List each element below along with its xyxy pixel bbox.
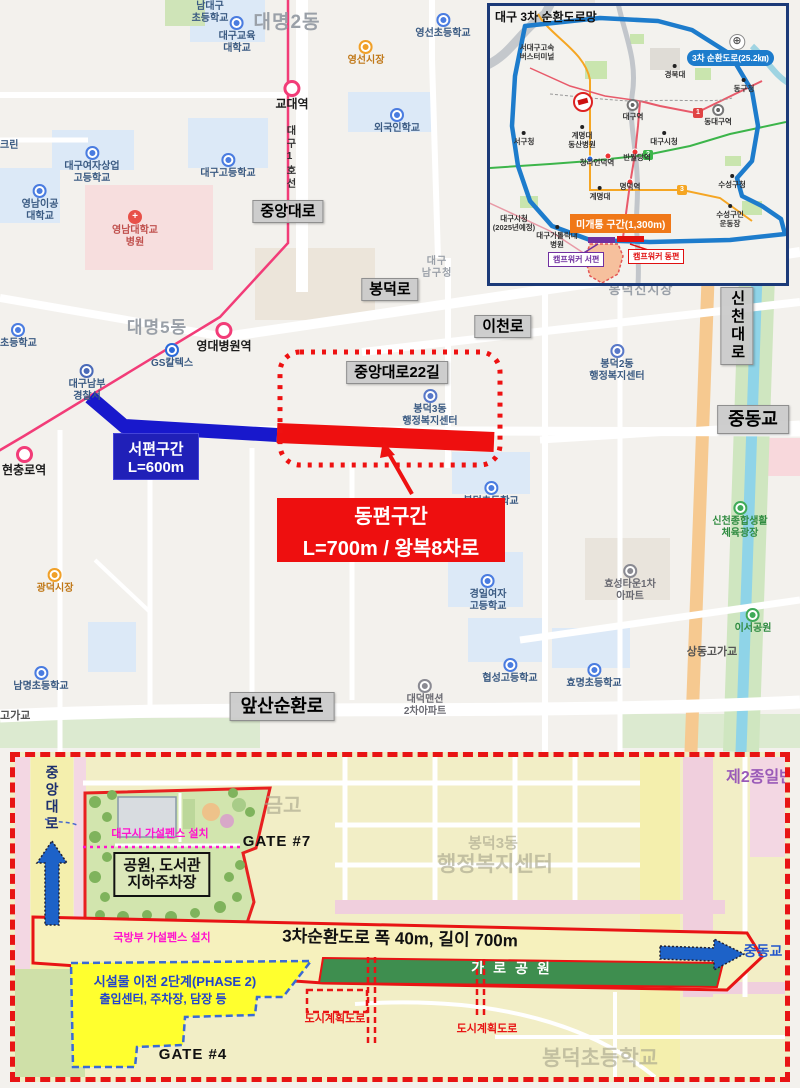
inset-title: 대구 3차 순환도로망 <box>495 8 597 25</box>
poi-clipped-left-1-text: 크린 <box>0 140 18 152</box>
inset-myeongdeok-station-text: 명덕역 <box>620 182 641 191</box>
inset-seodaegu-terminal: 서대구고속버스터미널 <box>520 43 555 61</box>
road-label-apsan-sunhwan-ro-text: 앞산순환로 <box>241 696 324 717</box>
school-icon <box>587 663 601 677</box>
poi-hyeopseong-high: 협성고등학교 <box>482 658 537 685</box>
inset-donggu-office: 동구청 <box>734 78 755 93</box>
poi-gs-caltex-text: GS칼텍스 <box>151 358 193 370</box>
west-section-length: L=600m <box>114 459 198 476</box>
dotb-icon <box>662 131 666 135</box>
line1-badge: 1 <box>693 108 703 118</box>
poi-yeongseon-market-text: 영선시장 <box>348 55 385 67</box>
poi-hyomyeong-elementary-text: 효명초등학교 <box>566 678 621 690</box>
poi-yeongseon-elementary-text: 영선초등학교 <box>415 28 470 40</box>
poi-yeongseon-market: 영선시장 <box>348 40 385 67</box>
sta2-icon <box>712 104 724 116</box>
school-icon <box>221 153 235 167</box>
east-section-length: L=700m / 왕복8차로 <box>277 532 505 561</box>
west-section-road <box>90 397 277 435</box>
line3-badge: 3 <box>677 185 687 195</box>
poi-kyungil-girls-high-text: 경일여자고등학교 <box>470 589 507 612</box>
poi-sincheon-sports-plaza-text: 신천종합생활체육광장 <box>712 516 767 539</box>
poi-daegu-nambu-police-text: 대구남부경찰서 <box>69 379 106 402</box>
poi-nammyeong-elementary-text: 남명초등학교 <box>13 681 68 693</box>
linear-park-label: 가로공원 <box>471 960 559 977</box>
road-label-icheon-ro-text: 이천로 <box>482 318 523 335</box>
station-gyodae-text: 교대역 <box>275 98 308 112</box>
west-section-name: 서편구간 <box>114 438 198 459</box>
dotb-icon <box>580 125 584 129</box>
road-label-jungang-daero-22gil-text: 중앙대로22길 <box>354 364 440 381</box>
jungang-daero-vertical-label: 중앙대로 <box>44 765 60 833</box>
bridge-label-clipped: 고가교 <box>0 710 30 723</box>
inset-cityhall-2025-text: 대구시청(2025년예정) <box>493 214 535 232</box>
poi-daegu-girls-commercial-high: 대구여자상업고등학교 <box>64 146 119 184</box>
poi-hyeopseong-high-text: 협성고등학교 <box>482 673 537 685</box>
gate-4-label-text: GATE #4 <box>159 1046 227 1063</box>
unopened-section-label: 미개통 구간(1,300m) <box>570 214 671 233</box>
urban-planning-road-label-2-text: 도시계획도로 <box>457 1023 518 1036</box>
park-icon <box>733 501 747 515</box>
poi-gs-caltex: GS칼텍스 <box>151 343 193 370</box>
station-hyeonchungno-text: 현충로역 <box>2 464 46 478</box>
area-label-daemyeong-2dong: 대명2동 <box>253 12 320 34</box>
inset-seogu-office-text: 서구청 <box>514 137 535 146</box>
poi-clipped-elementary-text: 초등학교 <box>0 338 37 350</box>
faded-bongdeok3-text: 봉덕3동 <box>468 835 518 852</box>
poi-yeongseon-elementary: 영선초등학교 <box>415 13 470 40</box>
poi-yeungnam-univ-hospital: +영남대학교병원 <box>112 210 158 248</box>
station-yeungdae-hospital: 영대병원역 <box>196 322 251 354</box>
east-section-callout: 동편구간 L=700m / 왕복8차로 <box>277 498 505 562</box>
linear-park-label-text: 가로공원 <box>471 960 559 977</box>
subway-line1-label: 대구1호선 <box>283 125 295 191</box>
poi-bongdeok2-center-text: 봉덕2동행정복지센터 <box>589 359 644 382</box>
road-label-apsan-sunhwan-ro: 앞산순환로 <box>230 692 335 721</box>
poi-daedeok-mansion-apt: 대덕맨션2차아파트 <box>404 679 446 717</box>
bridge-label-sangdong-text: 상동고가교 <box>687 646 738 659</box>
site-plan-canvas <box>15 757 785 1077</box>
inset-banwoldang-station-text: 반월당역 <box>623 153 651 162</box>
school-icon <box>33 184 47 198</box>
defense-ministry-fence-label-text: 국방부 가설펜스 설치 <box>113 932 210 945</box>
area-label-daemyeong-5dong: 대명5동 <box>127 318 187 338</box>
poi-kyungil-girls-high: 경일여자고등학교 <box>470 574 507 612</box>
market-icon <box>48 568 62 582</box>
road-label-jungang-daero-text: 중앙대로 <box>260 203 315 220</box>
ring-road-badge: 3차 순환도로(25.2㎞) <box>687 50 774 66</box>
faded-map-text-1-text: 금고 <box>265 795 302 818</box>
air-icon: ⊕ <box>729 34 745 50</box>
road-label-icheon-ro: 이천로 <box>474 315 531 338</box>
inset-banwoldang-station: 반월당역 <box>623 153 651 162</box>
inset-suseonggu-office-text: 수성구청 <box>718 180 746 189</box>
faded-bongdeok3: 봉덕3동 <box>468 835 518 852</box>
faded-community-center: 행정복지센터 <box>437 853 553 877</box>
road-label-bongdeok-ro: 봉덕로 <box>361 278 418 301</box>
inset-cheongna-station-text: 청라언덕역 <box>580 158 615 167</box>
east-section-name: 동편구간 <box>277 500 505 529</box>
bridge-label-sangdong: 상동고가교 <box>687 646 738 659</box>
poi-daegu-high: 대구고등학교 <box>200 153 255 180</box>
daegu-city-fence-label: 대구시 가설펜스 설치 <box>111 828 208 841</box>
park-icon <box>746 608 760 622</box>
station-gyodae: 교대역 <box>275 80 308 112</box>
camp-walker-east-label: 캠프워커 동편 <box>628 249 684 264</box>
poi-yeungnam-univ-hospital-text: 영남대학교병원 <box>112 225 158 248</box>
poi-clipped-elementary: 초등학교 <box>0 323 37 350</box>
poi-bongdeok3-center-text: 봉덕3동행정복지센터 <box>402 404 457 427</box>
poi-yeungnam-univ-tech: 영남이공대학교 <box>22 184 59 222</box>
jungang-daero-vertical-label-text: 중앙대로 <box>44 765 60 833</box>
inset-seodaegu-terminal-text: 서대구고속버스터미널 <box>520 43 555 61</box>
camp-walker-west-label: 캠프워커 서편 <box>548 252 604 267</box>
inset-daegu-station: 대구역 <box>623 99 644 121</box>
poi-iseo-park-text: 이서공원 <box>735 623 772 635</box>
inset-suseong-stadium: 수성구민운동장 <box>716 204 744 228</box>
daegu-city-fence-label-text: 대구시 가설펜스 설치 <box>111 828 208 841</box>
defense-ministry-fence-label: 국방부 가설펜스 설치 <box>113 932 210 945</box>
faded-map-text-1: 금고 <box>265 795 302 818</box>
school-icon <box>484 481 498 495</box>
inset-daegu-cityhall-text: 대구시청 <box>650 137 678 146</box>
school-icon <box>481 574 495 588</box>
dotb-icon <box>555 225 559 229</box>
poi-nammyeong-elementary: 남명초등학교 <box>13 666 68 693</box>
bridge-label-clipped-text: 고가교 <box>0 710 30 723</box>
station-yeungdae-hospital-text: 영대병원역 <box>196 340 251 354</box>
road-label-jungdong-bridge: 중동교 <box>717 405 789 434</box>
inset-suseonggu-office: 수성구청 <box>718 174 746 189</box>
poi-gwangdeok-market-text: 광덕시장 <box>37 583 74 595</box>
figure-root: 중앙대로봉덕로이천로중앙대로22길신천대로중동교앞산순환로대명2동대명5동봉덕신… <box>0 0 800 1088</box>
area-label-namgu-office-text: 대구남구청 <box>422 256 453 279</box>
inset-dongsan-hospital: 계명대동산병원 <box>568 125 596 149</box>
jungdong-bridge-label: 중동교 <box>744 943 783 959</box>
dotb-icon <box>673 64 677 68</box>
phase2-title-text: 시설물 이전 2단계(PHASE 2) <box>94 975 256 990</box>
inset-dongdaegu-station: 동대구역 <box>704 104 732 126</box>
dotb-icon <box>522 131 526 135</box>
faded-bongdeok-elementary: 봉덕초등학교 <box>542 1047 658 1071</box>
site-plan-diagram: 금고봉덕3동행정복지센터봉덕초등학교제2종일반GATE #7GATE #4대구시… <box>10 752 790 1082</box>
poi-bongdeok3-center: 봉덕3동행정복지센터 <box>402 389 457 427</box>
poi-sincheon-sports-plaza: 신천종합생활체육광장 <box>712 501 767 539</box>
sta2-icon <box>627 99 639 111</box>
gate-4-label: GATE #4 <box>159 1046 227 1063</box>
area-label-daemyeong-5dong-text: 대명5동 <box>127 318 187 338</box>
poi-iseo-park: 이서공원 <box>735 608 772 635</box>
police-icon <box>80 364 94 378</box>
poi-yeungnam-univ-tech-text: 영남이공대학교 <box>22 199 59 222</box>
area-label-namgu-office: 대구남구청 <box>422 256 453 279</box>
station-icon <box>215 322 232 339</box>
zoning-label: 제2종일반 <box>726 769 790 787</box>
inset-keimyung-univ: 계명대 <box>590 186 611 201</box>
road-label-jungdong-bridge-text: 중동교 <box>728 409 778 430</box>
inset-suseong-stadium-text: 수성구민운동장 <box>716 210 744 228</box>
inset-myeongdeok-station: 명덕역 <box>620 182 641 191</box>
poi-hyosung-town-apt: 효성타운1차아파트 <box>604 564 656 602</box>
urban-planning-road-label-2: 도시계획도로 <box>457 1023 518 1036</box>
market-icon <box>359 40 373 54</box>
poi-daegu-natl-univ-education: 대구교육대학교 <box>219 16 256 54</box>
urban-planning-road-label-1: 도시계획도로 <box>305 1013 366 1026</box>
faded-community-center-text: 행정복지센터 <box>437 853 553 877</box>
phase2-title: 시설물 이전 2단계(PHASE 2) <box>94 975 256 990</box>
poi-clipped-left-1: 크린 <box>0 140 18 152</box>
phase2-subtitle-text: 출입센터, 주차장, 담장 등 <box>99 993 226 1007</box>
dotb-icon <box>742 78 746 82</box>
inset-dongsan-hospital-text: 계명대동산병원 <box>568 131 596 149</box>
zoning-label-text: 제2종일반 <box>726 769 790 787</box>
poi-foreign-school-text: 외국인학교 <box>374 123 420 135</box>
inset-ring-road-map: 대구 3차 순환도로망 3차 순환도로(25.2㎞) 미개통 구간(1,300m… <box>487 3 789 286</box>
inset-daegu-cityhall: 대구시청 <box>650 131 678 146</box>
poi-gwangdeok-market: 광덕시장 <box>37 568 74 595</box>
station-icon <box>16 446 33 463</box>
apt-icon <box>418 679 432 693</box>
road-label-jungang-daero: 중앙대로 <box>252 200 323 223</box>
dotb-icon <box>728 204 732 208</box>
gate-7-label-text: GATE #7 <box>243 833 311 850</box>
center-marker <box>574 93 592 111</box>
park-library-parking-box: 공원, 도서관지하주차장 <box>113 852 210 897</box>
school-icon <box>436 13 450 27</box>
gate-7-label: GATE #7 <box>243 833 311 850</box>
road-label-sincheon-daero: 신천대로 <box>720 287 753 365</box>
poi-bongdeok2-center: 봉덕2동행정복지센터 <box>589 344 644 382</box>
poi-daegu-high-text: 대구고등학교 <box>200 168 255 180</box>
faded-bongdeok-elementary-text: 봉덕초등학교 <box>542 1047 658 1071</box>
inset-cheongna-station: 청라언덕역 <box>580 158 615 167</box>
poi-daegu-nambu-police: 대구남부경찰서 <box>69 364 106 402</box>
inset-donggu-office-text: 동구청 <box>734 84 755 93</box>
inset-cityhall-2025: 대구시청(2025년예정) <box>493 214 535 232</box>
inset-seogu-office: 서구청 <box>514 131 535 146</box>
school-icon <box>390 108 404 122</box>
poi-daegu-natl-univ-education-text: 대구교육대학교 <box>219 31 256 54</box>
inset-kyungpook-univ: 경북대 <box>665 64 686 79</box>
jungdong-bridge-label-text: 중동교 <box>744 943 783 959</box>
station-hyeonchungno: 현충로역 <box>2 446 46 478</box>
inset-kyungpook-univ-text: 경북대 <box>665 70 686 79</box>
hosp-icon: + <box>128 210 142 224</box>
poi-hyosung-town-apt-text: 효성타운1차아파트 <box>604 579 656 602</box>
poi-daegu-girls-commercial-high-text: 대구여자상업고등학교 <box>64 161 119 184</box>
school-icon <box>34 666 48 680</box>
school-icon <box>11 323 25 337</box>
west-section-callout: 서편구간 L=600m <box>113 433 199 480</box>
school-icon <box>230 16 244 30</box>
road-label-sincheon-daero-text: 신천대로 <box>728 290 745 362</box>
inset-keimyung-univ-text: 계명대 <box>590 192 611 201</box>
school-icon <box>503 658 517 672</box>
inset-daegu-station-text: 대구역 <box>623 112 644 121</box>
dotb-icon <box>730 174 734 178</box>
subway-line1-label-text: 대구1호선 <box>283 125 295 191</box>
inset-catholic-hospital-text: 대구가톨릭대병원 <box>536 231 577 249</box>
east-section-road <box>277 433 494 442</box>
gs-icon <box>165 343 179 357</box>
area-label-daemyeong-2dong-text: 대명2동 <box>253 12 320 34</box>
sincheon-daero-road <box>691 280 708 752</box>
poi-daedeok-mansion-apt-text: 대덕맨션2차아파트 <box>404 694 446 717</box>
road-label-bongdeok-ro-text: 봉덕로 <box>369 281 410 298</box>
gov-icon <box>423 389 437 403</box>
road-label-jungang-daero-22gil: 중앙대로22길 <box>346 361 448 384</box>
inset-dongdaegu-station-text: 동대구역 <box>704 117 732 126</box>
gov-icon <box>610 344 624 358</box>
apt-icon <box>623 564 637 578</box>
dotb-icon <box>598 186 602 190</box>
station-icon <box>284 80 301 97</box>
poi-foreign-school: 외국인학교 <box>374 108 420 135</box>
park-library-parking-box-text: 공원, 도서관지하주차장 <box>123 857 200 892</box>
phase2-subtitle: 출입센터, 주차장, 담장 등 <box>99 993 226 1007</box>
urban-planning-road-label-1-text: 도시계획도로 <box>305 1013 366 1026</box>
poi-hyomyeong-elementary: 효명초등학교 <box>566 663 621 690</box>
school-icon <box>85 146 99 160</box>
